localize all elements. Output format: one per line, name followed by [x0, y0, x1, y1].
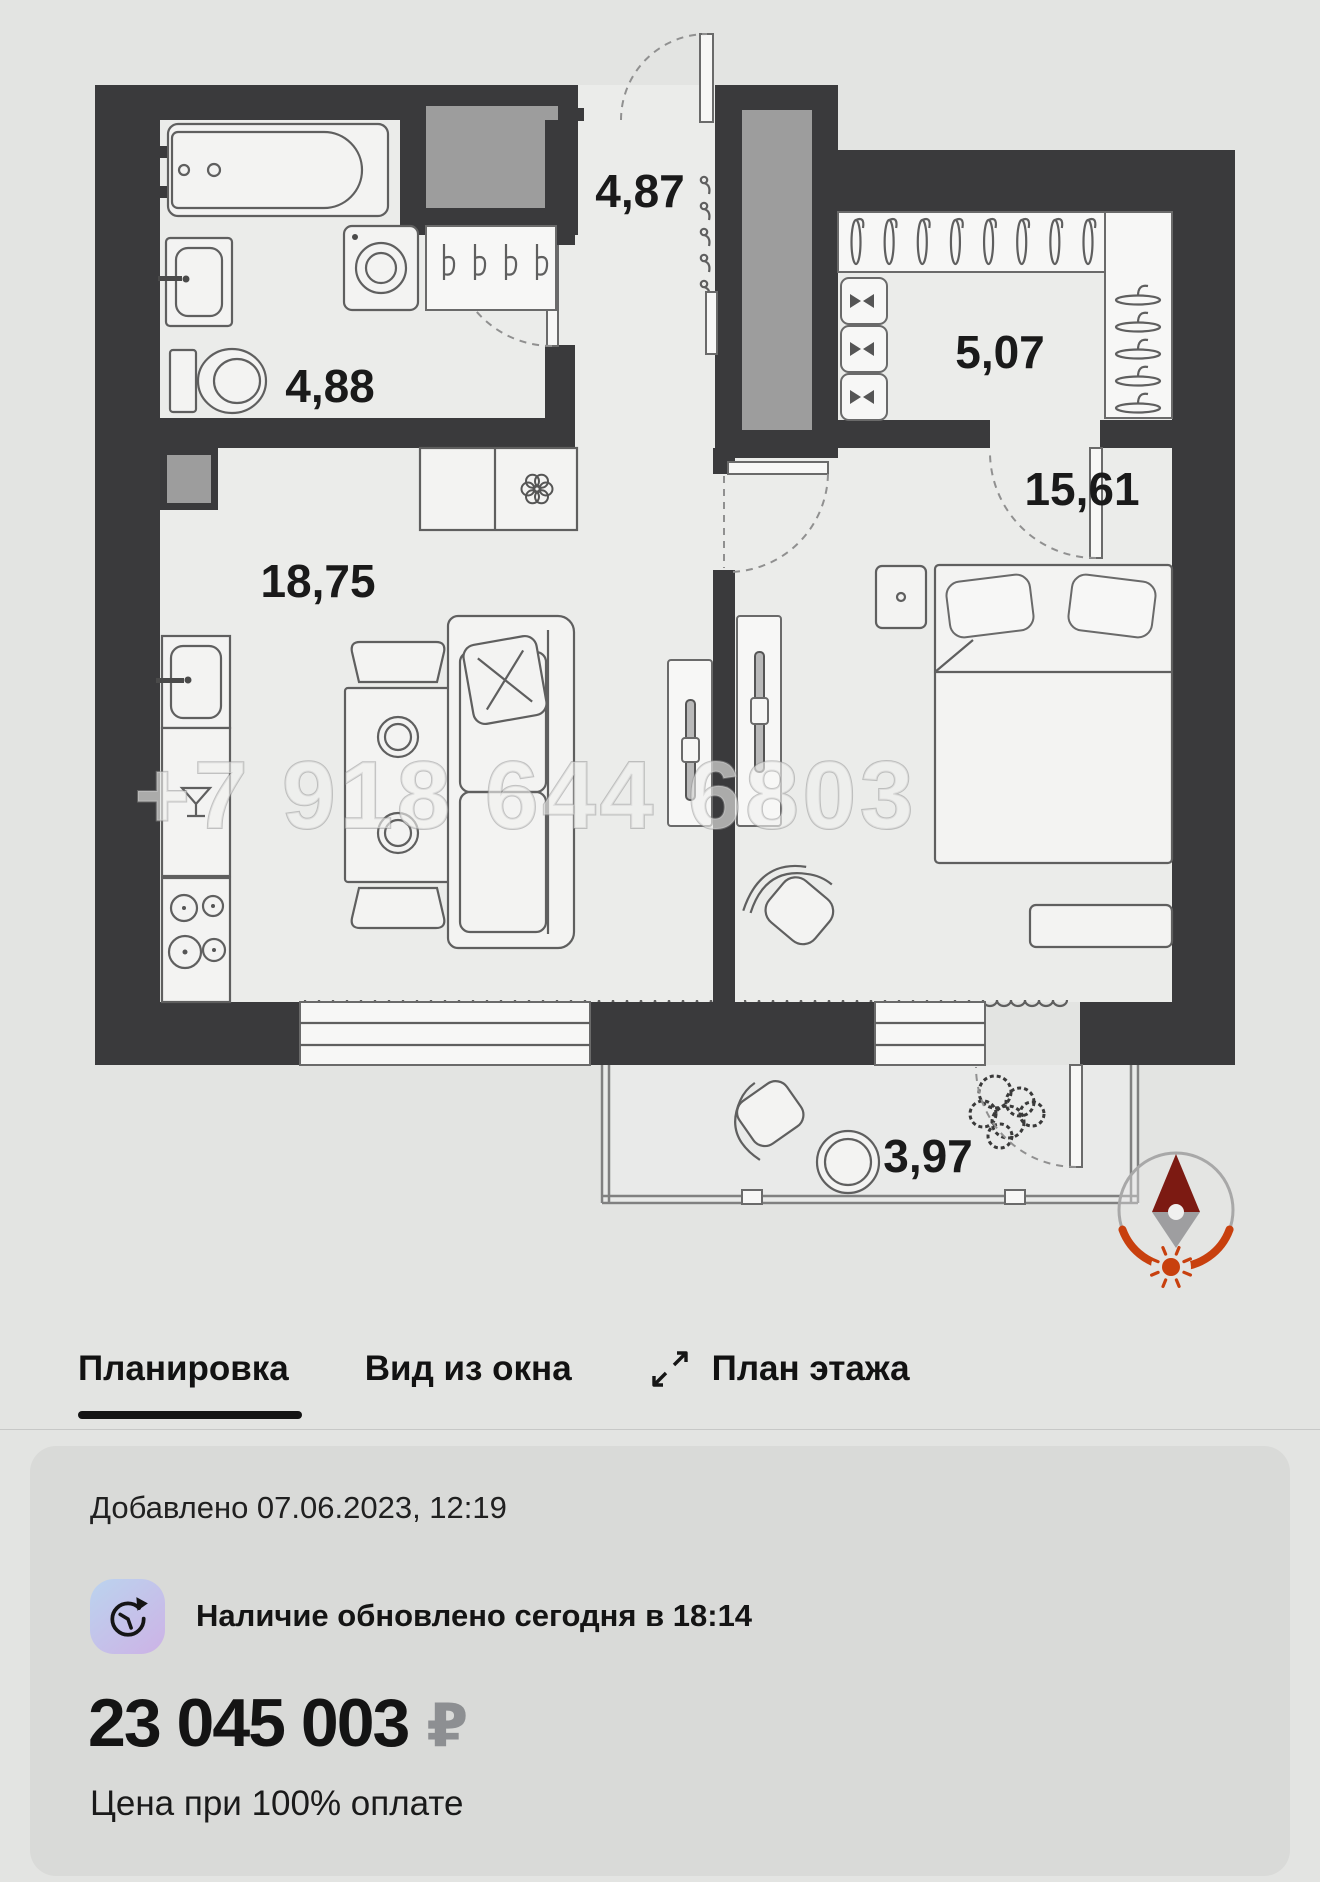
- bathroom-area-label: 4,88: [285, 360, 375, 412]
- bedroom-area-label: 15,61: [1024, 463, 1139, 515]
- price-note: Цена при 100% оплате: [90, 1784, 463, 1824]
- availability-status: Наличие обновлено сегодня в 18:14: [196, 1598, 752, 1634]
- listing-info-card: Добавлено 07.06.2023, 12:19 Наличие обно…: [30, 1446, 1290, 1876]
- added-date: Добавлено 07.06.2023, 12:19: [90, 1490, 507, 1526]
- listing-screen: 3,97: [0, 0, 1320, 1882]
- tab-layout[interactable]: Планировка: [78, 1349, 289, 1389]
- price-row: 23 045 003 ₽: [88, 1684, 468, 1762]
- divider: [0, 1429, 1320, 1430]
- balcony-table: [817, 1131, 879, 1193]
- sun-icon: [1162, 1258, 1180, 1276]
- floor-plan-image[interactable]: 3,97: [0, 0, 1320, 1320]
- price-value: 23 045 003: [88, 1684, 408, 1762]
- kitchen-area-label: 18,75: [260, 555, 375, 607]
- compass-icon: [1119, 1153, 1233, 1287]
- currency-ruble: ₽: [426, 1691, 468, 1761]
- hall-area-label: 4,87: [595, 165, 685, 217]
- expand-icon[interactable]: [648, 1347, 692, 1391]
- tab-floor-plan[interactable]: План этажа: [712, 1349, 910, 1389]
- history-clock-icon: [90, 1579, 165, 1654]
- active-tab-underline: [78, 1411, 302, 1419]
- sofa-pillow: [462, 634, 549, 726]
- balcony-area-label: 3,97: [883, 1130, 973, 1182]
- balcony: 3,97: [600, 1065, 1140, 1205]
- view-tabs: Планировка Вид из окна План этажа: [0, 1338, 1320, 1400]
- watermark-phone: +7 918 644 6803: [134, 742, 917, 849]
- tab-window-view[interactable]: Вид из окна: [365, 1349, 572, 1389]
- wardrobe-area-label: 5,07: [955, 326, 1045, 378]
